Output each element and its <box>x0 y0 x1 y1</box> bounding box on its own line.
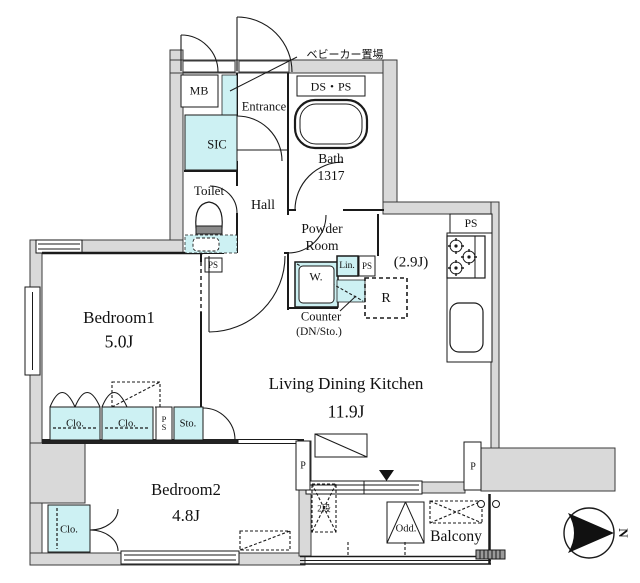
bedroom2-closet-arc2 <box>90 530 118 551</box>
bedroom2-window <box>121 551 239 564</box>
entry-direction-marker <box>379 470 394 481</box>
closet1-door-arc <box>50 393 75 408</box>
ldk-label: Living Dining Kitchen <box>269 374 424 394</box>
hall-label: Hall <box>251 198 275 214</box>
bath-label: Bath <box>318 151 344 167</box>
washer-label: W. <box>309 270 322 285</box>
fridge-label: R <box>381 291 390 307</box>
sink-icon <box>450 303 483 352</box>
outdoor-unit-label: Odd. <box>396 524 417 535</box>
kitchen-size-label: (2.9J) <box>394 255 429 272</box>
floor-plan: ベビーカー置場 MB DS・PS Entrance SIC Toilet Hal… <box>0 0 640 583</box>
bedroom1-label: Bedroom1 <box>83 308 155 328</box>
bedroom2-closet-label: Clo. <box>60 525 78 536</box>
two-step-label: 2段 <box>317 502 331 515</box>
sic-label: SIC <box>207 138 226 153</box>
north-label: N <box>615 528 631 537</box>
stroller-area-label: ベビーカー置場 <box>307 46 384 62</box>
ps-label-hall: PS <box>208 260 218 270</box>
closet2-label: Clo. <box>118 419 136 430</box>
bathtub <box>295 100 367 148</box>
ps-label-kitchen: PS <box>465 218 478 230</box>
storage-door-arc <box>203 408 235 440</box>
bedroom2-label: Bedroom2 <box>151 480 221 500</box>
closet1-label: Clo. <box>66 419 84 430</box>
stroller-spot <box>222 75 237 115</box>
pillar-right-label: P <box>470 462 476 473</box>
bedroom2-closet-arc1 <box>90 509 118 530</box>
outdoor-unit-box <box>387 502 424 543</box>
entrance-label: Entrance <box>242 100 286 115</box>
bedroom2-size-label: 4.8J <box>172 506 200 526</box>
sic-door-arc <box>237 116 282 161</box>
ds-ps-label: DS・PS <box>311 78 352 95</box>
ps-label-powder: PS <box>362 261 372 271</box>
bedroom1-size-label: 5.0J <box>105 332 134 353</box>
counter-label-1: Counter <box>301 310 341 325</box>
stove-icon <box>447 233 492 362</box>
balcony-label: Balcony <box>430 528 482 546</box>
closet2-door-arc <box>102 393 127 408</box>
toilet-icon <box>193 202 222 251</box>
balcony-drain <box>476 550 505 559</box>
ldk-size-label: 11.9J <box>328 402 365 423</box>
ps-label-closet: PS <box>160 415 169 431</box>
powder-room-label-2: Room <box>305 238 338 254</box>
linen-label: Lin. <box>339 261 355 271</box>
pillar-left-label: P <box>300 461 306 472</box>
mb-label: MB <box>190 84 209 99</box>
bedroom1-top-window <box>36 240 82 253</box>
bath-size-label: 1317 <box>318 168 345 184</box>
closet1-door-arc2 <box>75 393 100 408</box>
toilet-label: Toilet <box>194 183 224 199</box>
counter-label-2: (DN/Sto.) <box>296 326 342 338</box>
storage-label: Sto. <box>180 419 197 430</box>
north-arrow <box>564 508 614 558</box>
powder-room-label-1: Powder <box>301 221 342 237</box>
counter-top <box>337 280 365 302</box>
